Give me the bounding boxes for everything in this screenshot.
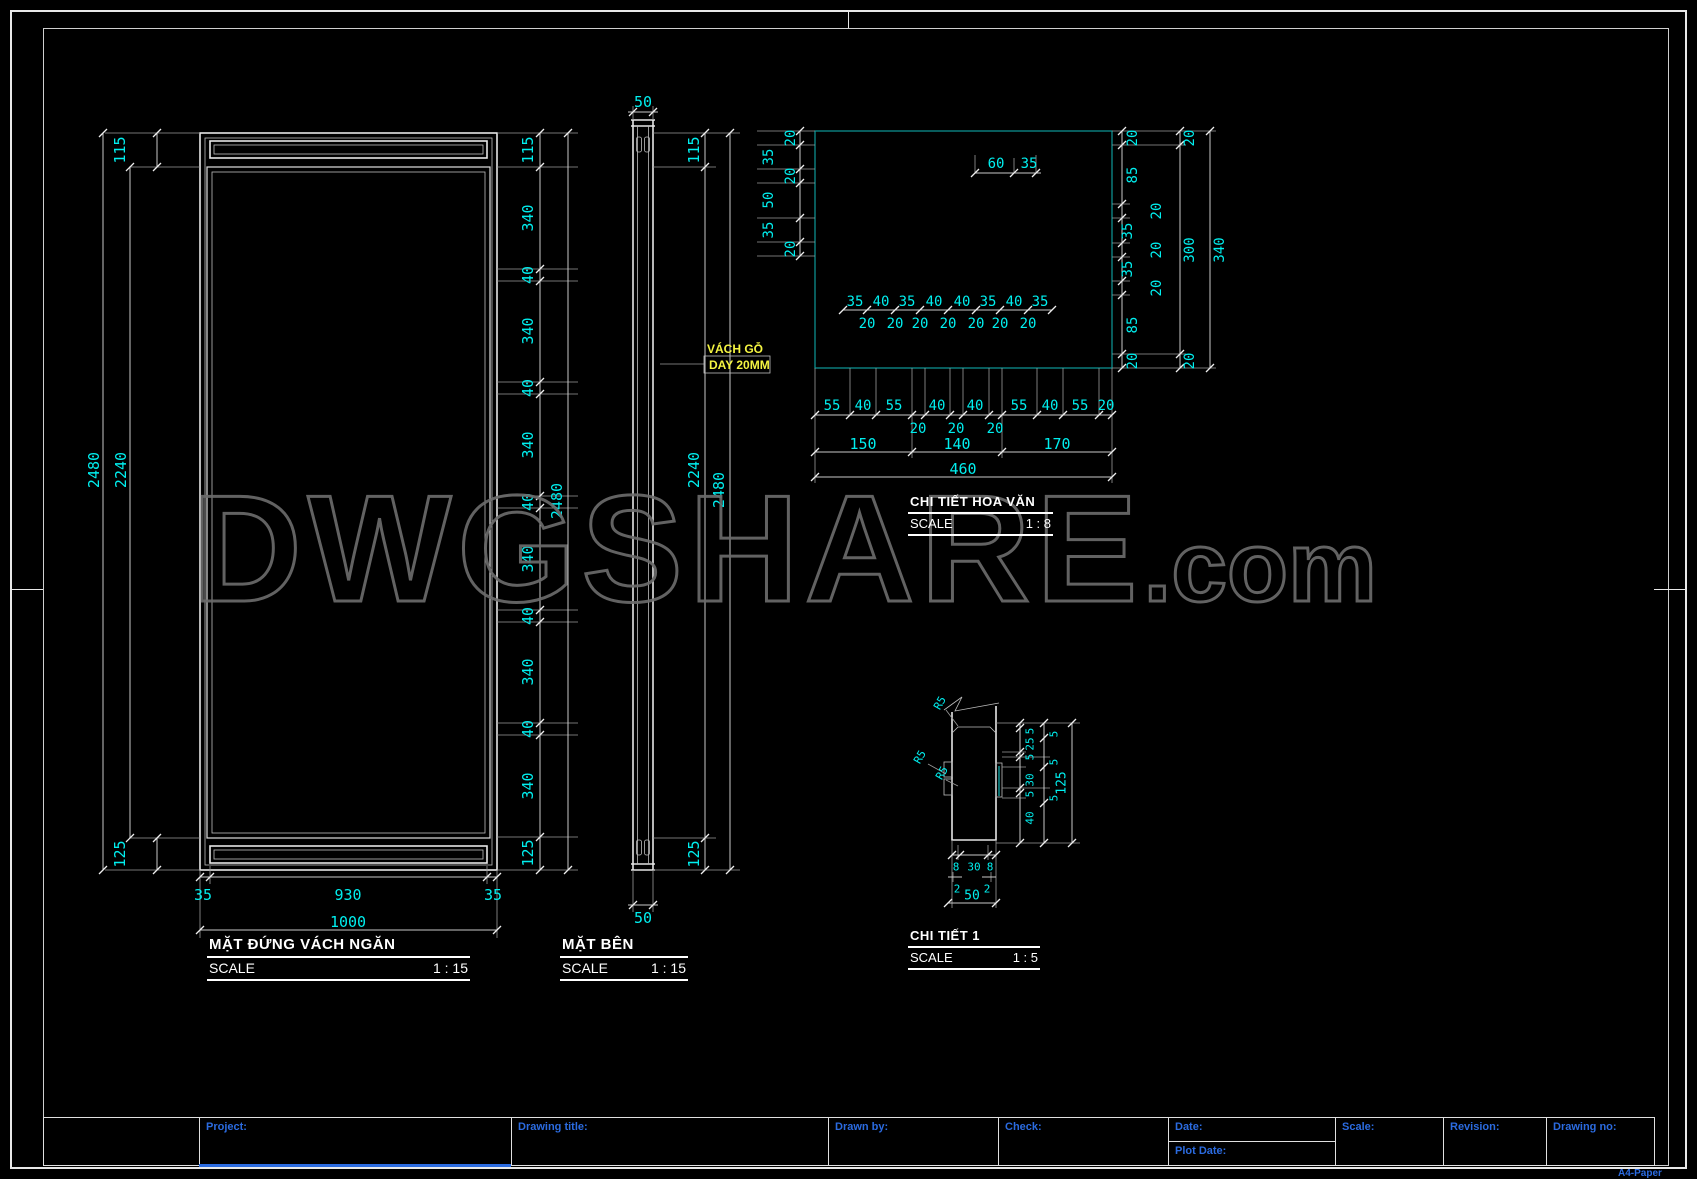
dim-label: 55 — [824, 398, 841, 414]
dim-label: 20 — [783, 130, 799, 147]
dim-label: 50 — [634, 909, 652, 927]
top-rail — [210, 141, 487, 158]
bottom-rail — [210, 846, 487, 863]
dim-label: 35 — [1120, 223, 1136, 240]
title-block-drawing-no-cell[interactable]: Drawing no: — [1547, 1118, 1654, 1165]
profile-outline — [952, 706, 996, 840]
title-block-project-cell[interactable]: Project: — [200, 1118, 512, 1165]
dim-label: 125 — [519, 839, 537, 866]
scale-value: 1 : 15 — [651, 960, 686, 976]
view-scale-row: SCALE 1 : 8 — [908, 514, 1053, 536]
pattern-detail-title-block: CHI TIẾT HOA VĂN SCALE 1 : 8 — [908, 494, 1053, 536]
dim-label: 35 — [1120, 261, 1136, 278]
extension-lines — [105, 133, 578, 938]
title-block-scale-cell[interactable]: Scale: — [1336, 1118, 1444, 1165]
drawn-by-label: Drawn by: — [829, 1118, 998, 1136]
scale-value: 1 : 8 — [1026, 516, 1051, 531]
dim-label: 2240 — [112, 452, 130, 488]
dim-label: 20 — [1149, 280, 1165, 297]
radius-label: R5 — [931, 694, 949, 712]
scale-label: SCALE — [910, 516, 953, 531]
bottom-rail-inner — [214, 850, 483, 859]
dim-label: 30 — [1024, 773, 1037, 786]
dim-label: 140 — [943, 435, 970, 453]
dim-label: 55 — [886, 398, 903, 414]
dim-label: 40 — [1024, 811, 1037, 824]
radius-label: R5 — [911, 748, 929, 766]
material-note-line1: VÁCH GỖ — [707, 341, 763, 356]
plot-date-row: Plot Date: — [1169, 1142, 1335, 1166]
dim-label: 40 — [519, 607, 537, 625]
scale-label: SCALE — [562, 960, 608, 976]
dim-label: 40 — [929, 398, 946, 414]
dim-label: 85 — [1125, 167, 1141, 184]
view-scale-row: SCALE 1 : 15 — [207, 958, 470, 981]
dim-label: 8 — [953, 861, 960, 874]
top-rail-inner — [214, 145, 483, 154]
drawing-title-label: Drawing title: — [512, 1118, 828, 1136]
dim-label: 170 — [1043, 435, 1070, 453]
dim-label: 20 — [912, 316, 929, 332]
detail-1-title-block: CHI TIẾT 1 SCALE 1 : 5 — [908, 928, 1040, 970]
dim-label: 55 — [1011, 398, 1028, 414]
dim-label: 35 — [980, 294, 997, 310]
dim-label: 125 — [1055, 771, 1070, 794]
dim-label: 35 — [899, 294, 916, 310]
dim-label: 20 — [1098, 398, 1115, 414]
dim-label: 5 — [1024, 728, 1037, 735]
project-cell-accent-line — [199, 1164, 511, 1167]
dim-label: 115 — [685, 136, 703, 163]
dim-label: 340 — [519, 204, 537, 231]
dim-label: 2240 — [685, 452, 703, 488]
dim-label: 40 — [855, 398, 872, 414]
cad-drawing: 115 2480 2240 125 115 340 40 340 40 340 … — [0, 0, 1697, 1179]
dim-label: 40 — [519, 266, 537, 284]
dim-label: 2480 — [548, 483, 566, 519]
dim-label: 5 — [1024, 754, 1037, 761]
dim-label: 2480 — [85, 452, 103, 488]
dimension-lines — [103, 133, 568, 930]
dim-label: 35 — [761, 149, 777, 166]
panel-outline — [200, 133, 497, 870]
dim-label: 40 — [1042, 398, 1059, 414]
dim-label: 25 — [1024, 737, 1037, 750]
dim-label: 2 — [984, 883, 991, 896]
dim-label: 115 — [111, 136, 129, 163]
side-bar-outline — [631, 120, 655, 870]
front-elevation-title-block: MẶT ĐỨNG VÁCH NGĂN SCALE 1 : 15 — [207, 936, 470, 981]
profile-chamfer — [952, 727, 996, 733]
dim-label: 20 — [859, 316, 876, 332]
plot-date-label: Plot Date: — [1169, 1142, 1335, 1160]
dim-label: 20 — [1125, 130, 1141, 147]
dim-label: 20 — [968, 316, 985, 332]
dim-label: 35 — [484, 886, 502, 904]
dim-label: 340 — [519, 545, 537, 572]
view-title: MẶT BÊN — [560, 936, 688, 958]
dim-label: 40 — [519, 493, 537, 511]
break-line — [944, 697, 999, 711]
dim-label: 5 — [1024, 791, 1037, 798]
view-title: MẶT ĐỨNG VÁCH NGĂN — [207, 936, 470, 958]
dim-label: 5 — [1048, 731, 1061, 738]
dim-label: 340 — [519, 317, 537, 344]
dim-label: 20 — [1182, 353, 1198, 370]
project-label: Project: — [200, 1118, 511, 1136]
front-elevation-view: 115 2480 2240 125 115 340 40 340 40 340 … — [85, 129, 578, 938]
scale-label: SCALE — [209, 960, 255, 976]
dim-label: 40 — [519, 379, 537, 397]
dim-label: 1000 — [330, 913, 366, 931]
dim-label: 20 — [940, 316, 957, 332]
dim-label: 35 — [847, 294, 864, 310]
dim-label: 125 — [111, 840, 129, 867]
dim-label: 40 — [967, 398, 984, 414]
dim-label: 20 — [992, 316, 1009, 332]
scale-value: 1 : 5 — [1013, 950, 1038, 965]
view-scale-row: SCALE 1 : 15 — [560, 958, 688, 981]
dim-label: 35 — [1021, 156, 1038, 172]
dim-label: 35 — [1032, 294, 1049, 310]
dim-label: 340 — [519, 658, 537, 685]
dim-label: 35 — [194, 886, 212, 904]
dim-label: 5 — [1048, 759, 1061, 766]
dim-label: 300 — [1182, 237, 1198, 262]
dim-label: 20 — [887, 316, 904, 332]
dimension-lines — [948, 723, 1072, 903]
dim-label: 20 — [1020, 316, 1037, 332]
tick-marks — [99, 129, 572, 934]
date-row: Date: — [1169, 1118, 1335, 1142]
dim-label: 460 — [949, 460, 976, 478]
dim-label: 340 — [519, 431, 537, 458]
dim-label: 20 — [987, 421, 1004, 437]
side-view-title-block: MẶT BÊN SCALE 1 : 15 — [560, 936, 688, 981]
extension-lines — [952, 723, 1080, 908]
dim-label: 20 — [910, 421, 927, 437]
material-note-line2: DAY 20MM — [709, 358, 770, 372]
dim-label: 115 — [519, 136, 537, 163]
dim-label: 930 — [334, 886, 361, 904]
dim-label: 40 — [926, 294, 943, 310]
dim-label: 125 — [685, 840, 703, 867]
pattern-detail-view: 20 35 20 50 35 20 60 35 35 40 35 40 40 3… — [757, 127, 1228, 483]
dim-label: 50 — [964, 889, 980, 904]
dim-label: 50 — [761, 192, 777, 209]
dim-label: 50 — [634, 93, 652, 111]
detail-1-view: R5 R5 R5 5 25 5 30 5 40 5 5 5 125 8 30 8… — [911, 694, 1080, 908]
dim-label: 40 — [519, 720, 537, 738]
view-title: CHI TIẾT 1 — [908, 928, 1040, 948]
dim-label: 20 — [1182, 130, 1198, 147]
drawing-no-label: Drawing no: — [1547, 1118, 1654, 1136]
title-block: Project: Drawing title: Drawn by: Check:… — [43, 1117, 1655, 1166]
dim-label: 40 — [954, 294, 971, 310]
title-block-drawing-title-cell[interactable]: Drawing title: — [512, 1118, 829, 1165]
view-scale-row: SCALE 1 : 5 — [908, 948, 1040, 970]
dim-label: 340 — [1212, 237, 1228, 262]
dim-label: 20 — [783, 168, 799, 185]
title-block-logo-cell — [44, 1118, 200, 1165]
title-block-drawn-by-cell[interactable]: Drawn by: — [829, 1118, 999, 1165]
check-label: Check: — [999, 1118, 1168, 1136]
view-title: CHI TIẾT HOA VĂN — [908, 494, 1053, 514]
pattern-detail-box — [815, 131, 1112, 368]
dim-label: 60 — [988, 156, 1005, 172]
dim-label: 30 — [967, 861, 980, 874]
dim-label: 20 — [1149, 203, 1165, 220]
dim-label: 40 — [1006, 294, 1023, 310]
scale-label: Scale: — [1336, 1118, 1443, 1136]
date-label: Date: — [1169, 1118, 1335, 1136]
title-block-check-cell[interactable]: Check: — [999, 1118, 1169, 1165]
title-block-revision-cell[interactable]: Revision: — [1444, 1118, 1547, 1165]
dim-label: 2480 — [710, 472, 728, 508]
side-view: 50 115 2240 2480 125 50 VÁCH GỖ DAY 20MM — [628, 93, 770, 927]
lattice-pattern — [207, 167, 490, 838]
title-block-date-cell[interactable]: Date: Plot Date: — [1169, 1118, 1336, 1165]
dim-label: 20 — [1125, 353, 1141, 370]
dim-label: 2 — [954, 883, 961, 896]
scale-label: SCALE — [910, 950, 953, 965]
tick-marks — [944, 719, 1076, 907]
lattice-border-inner — [212, 172, 485, 833]
dim-label: 20 — [783, 241, 799, 258]
drawing-sheet: 115 2480 2240 125 115 340 40 340 40 340 … — [0, 0, 1697, 1179]
dim-label: 40 — [873, 294, 890, 310]
dim-label: 55 — [1072, 398, 1089, 414]
dim-label: 35 — [761, 222, 777, 239]
dim-label: 340 — [519, 772, 537, 799]
scale-value: 1 : 15 — [433, 960, 468, 976]
paper-size-label: A4-Paper — [1618, 1168, 1662, 1179]
dim-label: 85 — [1125, 317, 1141, 334]
side-bar-inner-lines — [638, 126, 649, 864]
dim-label: 20 — [1149, 242, 1165, 259]
revision-label: Revision: — [1444, 1118, 1546, 1136]
panel-outline-inner — [205, 138, 492, 865]
dim-label: 8 — [987, 861, 994, 874]
dim-label: 150 — [849, 435, 876, 453]
